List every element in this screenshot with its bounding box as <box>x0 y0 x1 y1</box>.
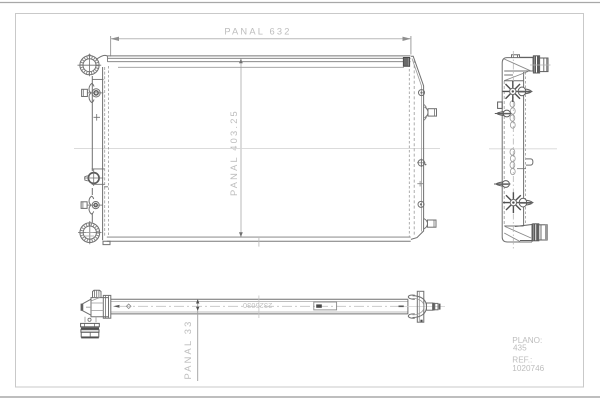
svg-text:435: 435 <box>513 344 527 353</box>
svg-text:1020746: 1020746 <box>512 364 544 373</box>
svg-text:2326030: 2326030 <box>243 301 272 310</box>
svg-text:PANAL 403.25: PANAL 403.25 <box>229 109 239 196</box>
svg-text:PANAL 33: PANAL 33 <box>183 320 193 380</box>
svg-text:PANAL 632: PANAL 632 <box>224 26 291 36</box>
